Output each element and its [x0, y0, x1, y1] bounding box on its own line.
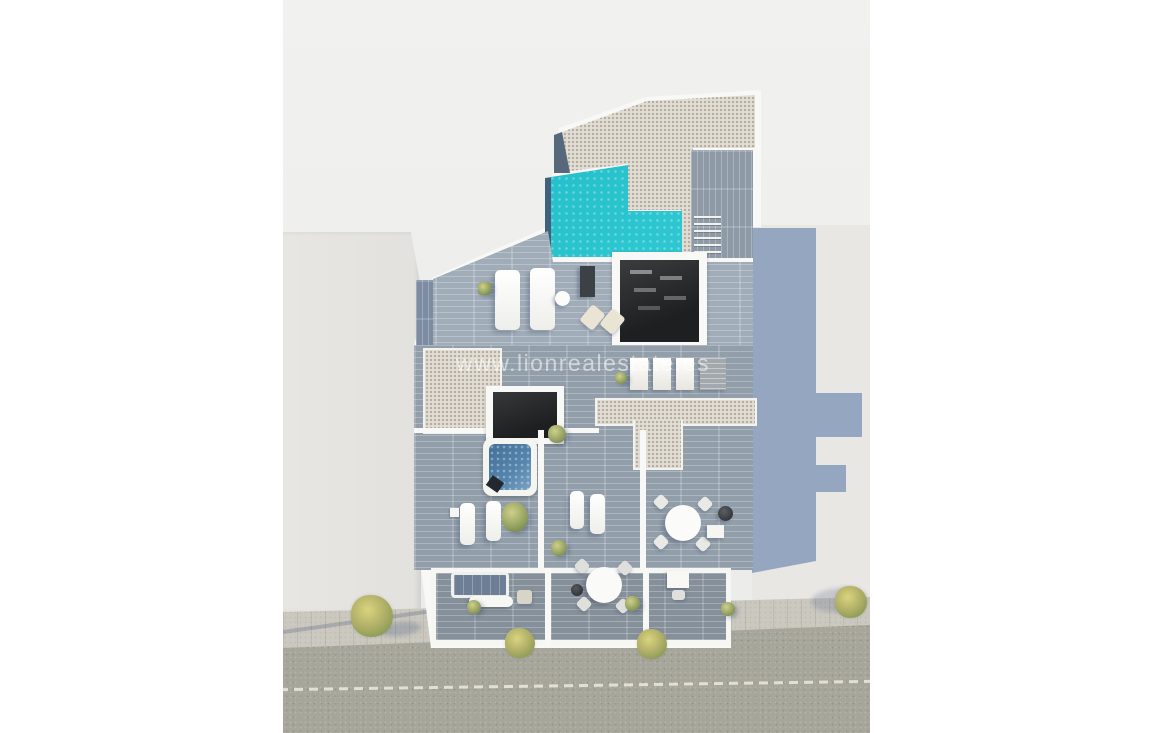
- plant-pot: [478, 282, 491, 295]
- terrace-shrub: [721, 602, 735, 616]
- armchair: [517, 590, 532, 604]
- terrace-shrub: [625, 596, 640, 611]
- terrace-divider-wall: [538, 430, 544, 570]
- plant-pot: [548, 425, 566, 443]
- watermark: www.lionrealestate.es: [433, 350, 733, 377]
- terrace-plant: [467, 600, 481, 614]
- terrace-divider-wall: [545, 568, 551, 645]
- barbecue: [718, 506, 733, 521]
- sidewalk-tree: [505, 628, 535, 658]
- left-neighbour-building: [283, 232, 421, 613]
- sidewalk-tree: [835, 586, 867, 618]
- terrace-plant: [551, 540, 567, 556]
- sun-lounger: [590, 494, 605, 534]
- dark-side-table: [571, 584, 583, 596]
- dining-table: [665, 505, 701, 541]
- building-shadow: [752, 225, 870, 647]
- sidewalk-tree: [351, 595, 393, 637]
- small-table: [450, 508, 459, 517]
- small-dining-table: [667, 571, 689, 588]
- right-neighbour-ground: [752, 225, 870, 647]
- round-side-table: [555, 291, 570, 306]
- sun-lounger: [460, 503, 475, 545]
- terrace-plant: [502, 502, 528, 532]
- render-canvas: www.lionrealestate.es: [283, 0, 870, 733]
- sun-lounger: [486, 501, 501, 541]
- sun-lounger: [570, 491, 584, 529]
- sun-bed: [530, 268, 555, 330]
- stairwell-atrium: [620, 260, 699, 342]
- deck-staircase: [694, 216, 721, 256]
- sidewalk-tree: [637, 629, 667, 659]
- jacuzzi: [483, 438, 537, 496]
- real-estate-render-page: { "image": { "kind": "3d-architectural-r…: [0, 0, 1152, 733]
- shower-panel: [580, 266, 595, 297]
- side-table: [707, 525, 724, 538]
- round-dining-table: [586, 567, 622, 603]
- garden-sofa: [451, 572, 509, 598]
- dining-chair: [672, 590, 685, 600]
- sun-bed: [495, 270, 520, 330]
- terrace-divider-wall: [640, 430, 646, 570]
